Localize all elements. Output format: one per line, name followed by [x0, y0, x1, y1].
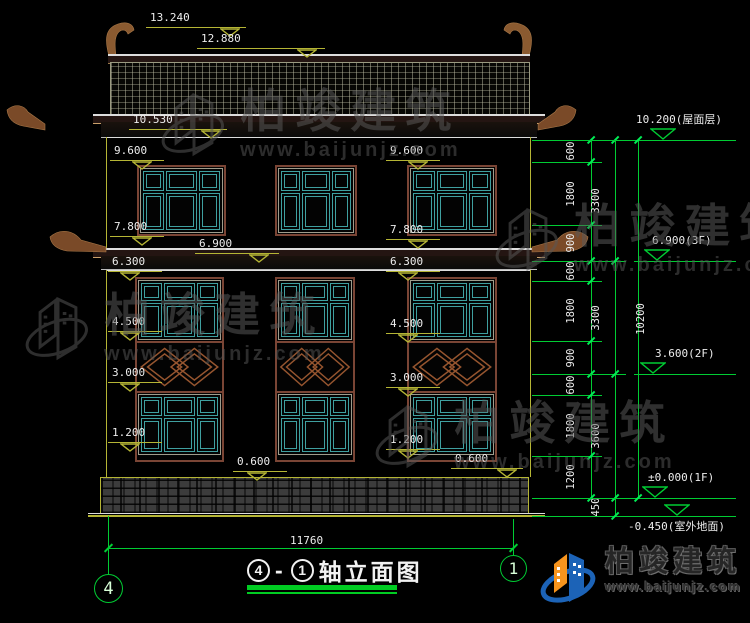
dimension-value: 1800 [566, 413, 577, 438]
window-pane [437, 418, 468, 452]
window-pane [197, 397, 218, 416]
window-pane [302, 397, 328, 416]
window-pane [281, 193, 300, 230]
window-lattice [138, 394, 221, 455]
window-pane [197, 418, 218, 452]
elevation-triangle [408, 161, 428, 170]
elevation-label: 0.600 [455, 453, 488, 464]
wall-edge-right [530, 137, 531, 477]
window-pane [143, 171, 164, 191]
title-axis-end: 1 [291, 559, 314, 582]
window-pane [330, 418, 349, 452]
level-label: 6.900(3F) [652, 235, 712, 246]
bottom-dimension-value: 11760 [290, 535, 323, 546]
upper-eave-corner-left [5, 103, 47, 136]
upper-eave-corner-right [536, 103, 578, 136]
dimension-value: 3300 [591, 305, 602, 330]
lower-eave-corner-left [48, 228, 108, 255]
level-line [618, 516, 736, 517]
window-pane [469, 303, 491, 337]
window-pane [330, 283, 349, 301]
title-underline-thin [247, 592, 397, 594]
window-pane [281, 283, 300, 301]
level-line [634, 261, 736, 262]
window-pane [302, 193, 329, 230]
company-logo-icon [540, 547, 598, 609]
window-pane [469, 171, 491, 191]
window-pane [330, 397, 349, 416]
dimension-value: 3600 [591, 423, 602, 448]
window-pane [332, 193, 351, 230]
elevation-label: 12.880 [201, 33, 241, 44]
window-pane [302, 418, 328, 452]
window-pane [413, 283, 435, 301]
window-pane [281, 303, 300, 337]
window-pane [437, 171, 468, 191]
window-pane [164, 397, 194, 416]
elevation-label: 6.300 [112, 256, 145, 267]
elevation-triangle [132, 237, 152, 246]
upper-roof-tiles [110, 62, 530, 116]
level-triangle [642, 486, 668, 498]
elevation-triangle [120, 383, 140, 392]
window-pane [437, 193, 468, 230]
elevation-triangle [408, 240, 428, 249]
window-pane [164, 283, 194, 301]
window-pane [437, 283, 468, 301]
title-axis-start: 4 [247, 559, 270, 582]
dimension-value: 900 [566, 234, 577, 253]
lower-wall-top-line [107, 270, 530, 271]
window-lattice [278, 168, 354, 233]
drawing-title: 4 - 1 轴立面图 [247, 553, 423, 587]
dimension-value: 1800 [566, 298, 577, 323]
elevation-triangle [120, 272, 140, 281]
window-pane [281, 397, 300, 416]
elevation-label: 13.240 [150, 12, 190, 23]
window-pane [164, 418, 194, 452]
window-pane [199, 193, 220, 230]
window-lattice [410, 280, 494, 340]
elevation-label: 1.200 [390, 434, 423, 445]
elevation-label: 6.900 [199, 238, 232, 249]
facade-bay-center [275, 277, 355, 462]
dimension-value: 3300 [591, 188, 602, 213]
level-label: -0.450(室外地面) [628, 521, 725, 532]
cad-elevation-drawing: 11760 4 1 4 - 1 轴立面图 柏竣建筑 www.baijunjz.c… [0, 0, 750, 623]
bottom-dimension-line [108, 548, 514, 549]
window-pane [469, 193, 491, 230]
elevation-label: 3.000 [112, 367, 145, 378]
company-name: 柏竣建筑 [605, 547, 741, 579]
window-pane [302, 303, 328, 337]
elevation-label: 7.800 [390, 224, 423, 235]
elevation-triangle [120, 443, 140, 452]
window-pane [166, 193, 196, 230]
dimension-tick-line [532, 140, 650, 141]
elevation-triangle [497, 469, 517, 478]
dimension-chain-line [615, 140, 616, 516]
level-triangle [650, 128, 676, 140]
level-label: 10.200(屋面层) [636, 114, 722, 125]
level-label: 3.600(2F) [655, 348, 715, 359]
ground-line-accent [88, 515, 545, 517]
lattice-panel [409, 341, 495, 393]
title-separator: - [275, 557, 286, 584]
wall-top-line [107, 137, 530, 138]
elevation-triangle [249, 254, 269, 263]
window-pane [164, 303, 194, 337]
elevation-triangle [398, 334, 418, 343]
elevation-label: 4.500 [390, 318, 423, 329]
upper-floor-window-center [275, 165, 357, 236]
window-pane [330, 303, 349, 337]
level-line [634, 374, 736, 375]
elevation-triangle [132, 161, 152, 170]
window-pane [199, 171, 220, 191]
level-label: ±0.000(1F) [648, 472, 714, 483]
dimension-value: 600 [566, 375, 577, 394]
elevation-triangle [247, 472, 267, 481]
dimension-value: 600 [566, 262, 577, 281]
level-triangle [644, 249, 670, 261]
level-triangle [640, 362, 666, 374]
watermark-url: www.baijunjz.com [240, 139, 461, 162]
window-lattice [278, 394, 352, 455]
title-underline-thick [247, 585, 397, 590]
level-triangle [664, 504, 690, 516]
elevation-label: 3.000 [390, 372, 423, 383]
window-pane [413, 397, 435, 416]
elevation-label: 6.300 [390, 256, 423, 267]
axis-bubble-4: 4 [94, 574, 123, 603]
watermark-logo-icon [22, 292, 94, 366]
elevation-label: 9.600 [114, 145, 147, 156]
window-pane [166, 171, 196, 191]
elevation-label: 9.600 [390, 145, 423, 156]
window-pane [197, 303, 218, 337]
ground-line [88, 513, 545, 514]
lower-eave-corner-right [530, 228, 590, 255]
window-pane [281, 171, 300, 191]
company-logo: 柏竣建筑 www.baijunjz.com [540, 547, 741, 609]
dimension-value: 450 [591, 498, 602, 517]
dimension-value: 1800 [566, 181, 577, 206]
axis-bubble-1: 1 [500, 555, 527, 582]
elevation-triangle [201, 130, 221, 139]
dimension-value: 600 [566, 142, 577, 161]
window-pane [469, 397, 491, 416]
window-pane [332, 171, 351, 191]
stone-plinth [100, 477, 529, 514]
window-lattice [278, 280, 352, 340]
elevation-label: 1.200 [112, 427, 145, 438]
elevation-label: 4.500 [112, 316, 145, 327]
dimension-tick-line [532, 498, 650, 499]
elevation-label: 7.800 [114, 221, 147, 232]
window-pane [302, 283, 328, 301]
elevation-triangle [398, 272, 418, 281]
lower-roof-under-eave [101, 256, 537, 270]
window-pane [469, 283, 491, 301]
dimension-value: 10200 [636, 303, 647, 335]
axis-number: 1 [509, 559, 519, 578]
window-pane [437, 397, 468, 416]
lattice-panel [277, 341, 353, 393]
company-url: www.baijunjz.com [605, 579, 741, 594]
ridge-ornament-left [100, 20, 142, 58]
facade-bay-left [135, 277, 224, 462]
window-lattice [140, 168, 223, 233]
elevation-triangle [120, 332, 140, 341]
elevation-triangle [297, 49, 317, 58]
upper-floor-window-left [137, 165, 226, 236]
window-pane [197, 283, 218, 301]
wall-edge-left [106, 137, 107, 477]
dimension-value: 1200 [566, 464, 577, 489]
elevation-triangle [398, 388, 418, 397]
window-pane [141, 283, 162, 301]
ridge-ornament-right [496, 20, 538, 58]
elevation-label: 0.600 [237, 456, 270, 467]
elevation-label: 10.530 [133, 114, 173, 125]
dimension-value: 900 [566, 348, 577, 367]
window-pane [437, 303, 468, 337]
window-pane [281, 418, 300, 452]
window-pane [469, 418, 491, 452]
window-pane [413, 171, 435, 191]
axis-number: 4 [103, 579, 113, 599]
title-text: 轴立面图 [319, 553, 423, 587]
elevation-triangle [398, 450, 418, 459]
lattice-panel [137, 341, 222, 393]
window-pane [141, 397, 162, 416]
window-pane [302, 171, 329, 191]
